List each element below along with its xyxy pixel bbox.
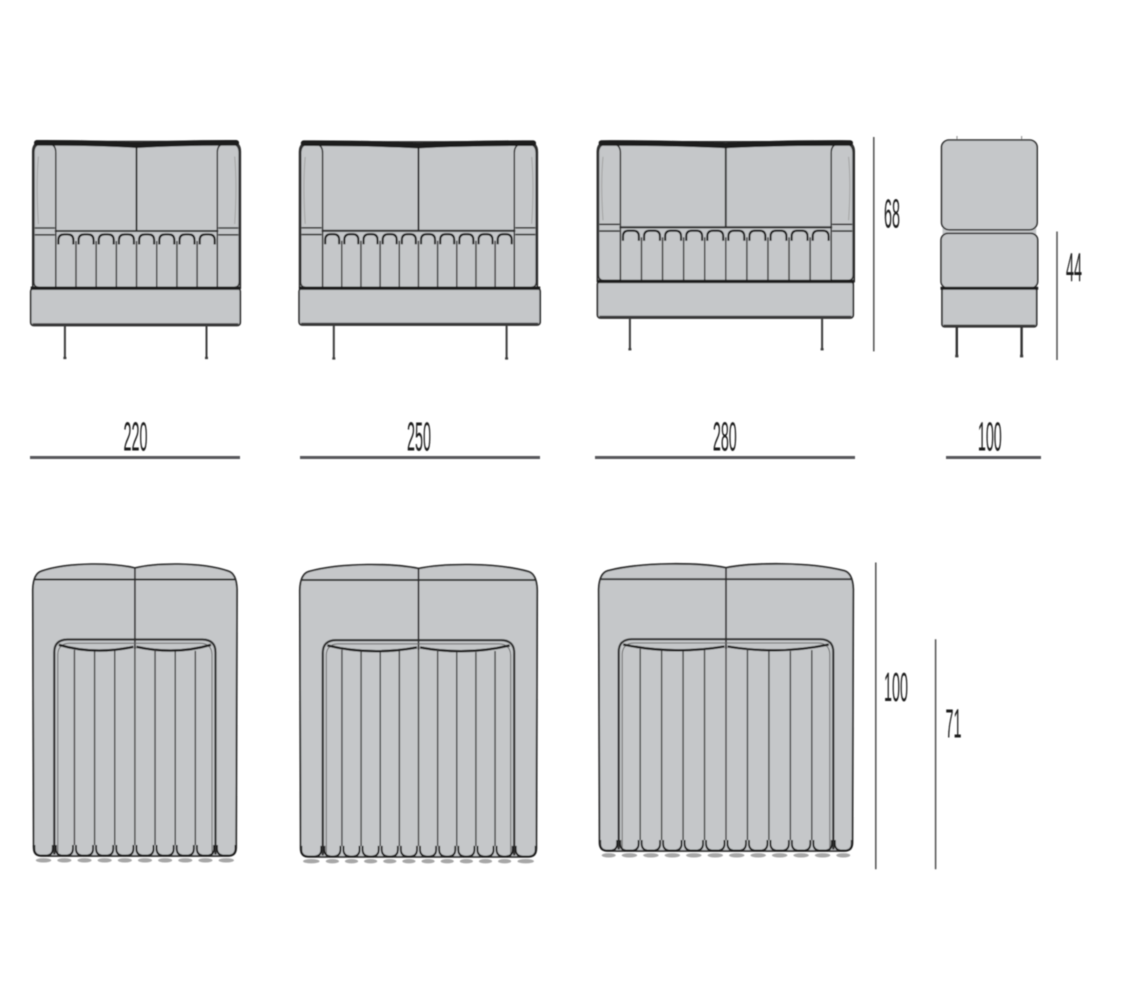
svg-text:71: 71 (946, 700, 962, 747)
svg-text:100: 100 (978, 413, 1002, 460)
svg-text:220: 220 (124, 413, 148, 460)
svg-text:280: 280 (713, 413, 737, 460)
svg-text:250: 250 (407, 413, 431, 460)
svg-text:44: 44 (1066, 244, 1082, 291)
svg-text:68: 68 (884, 190, 900, 237)
svg-text:100: 100 (884, 664, 908, 711)
